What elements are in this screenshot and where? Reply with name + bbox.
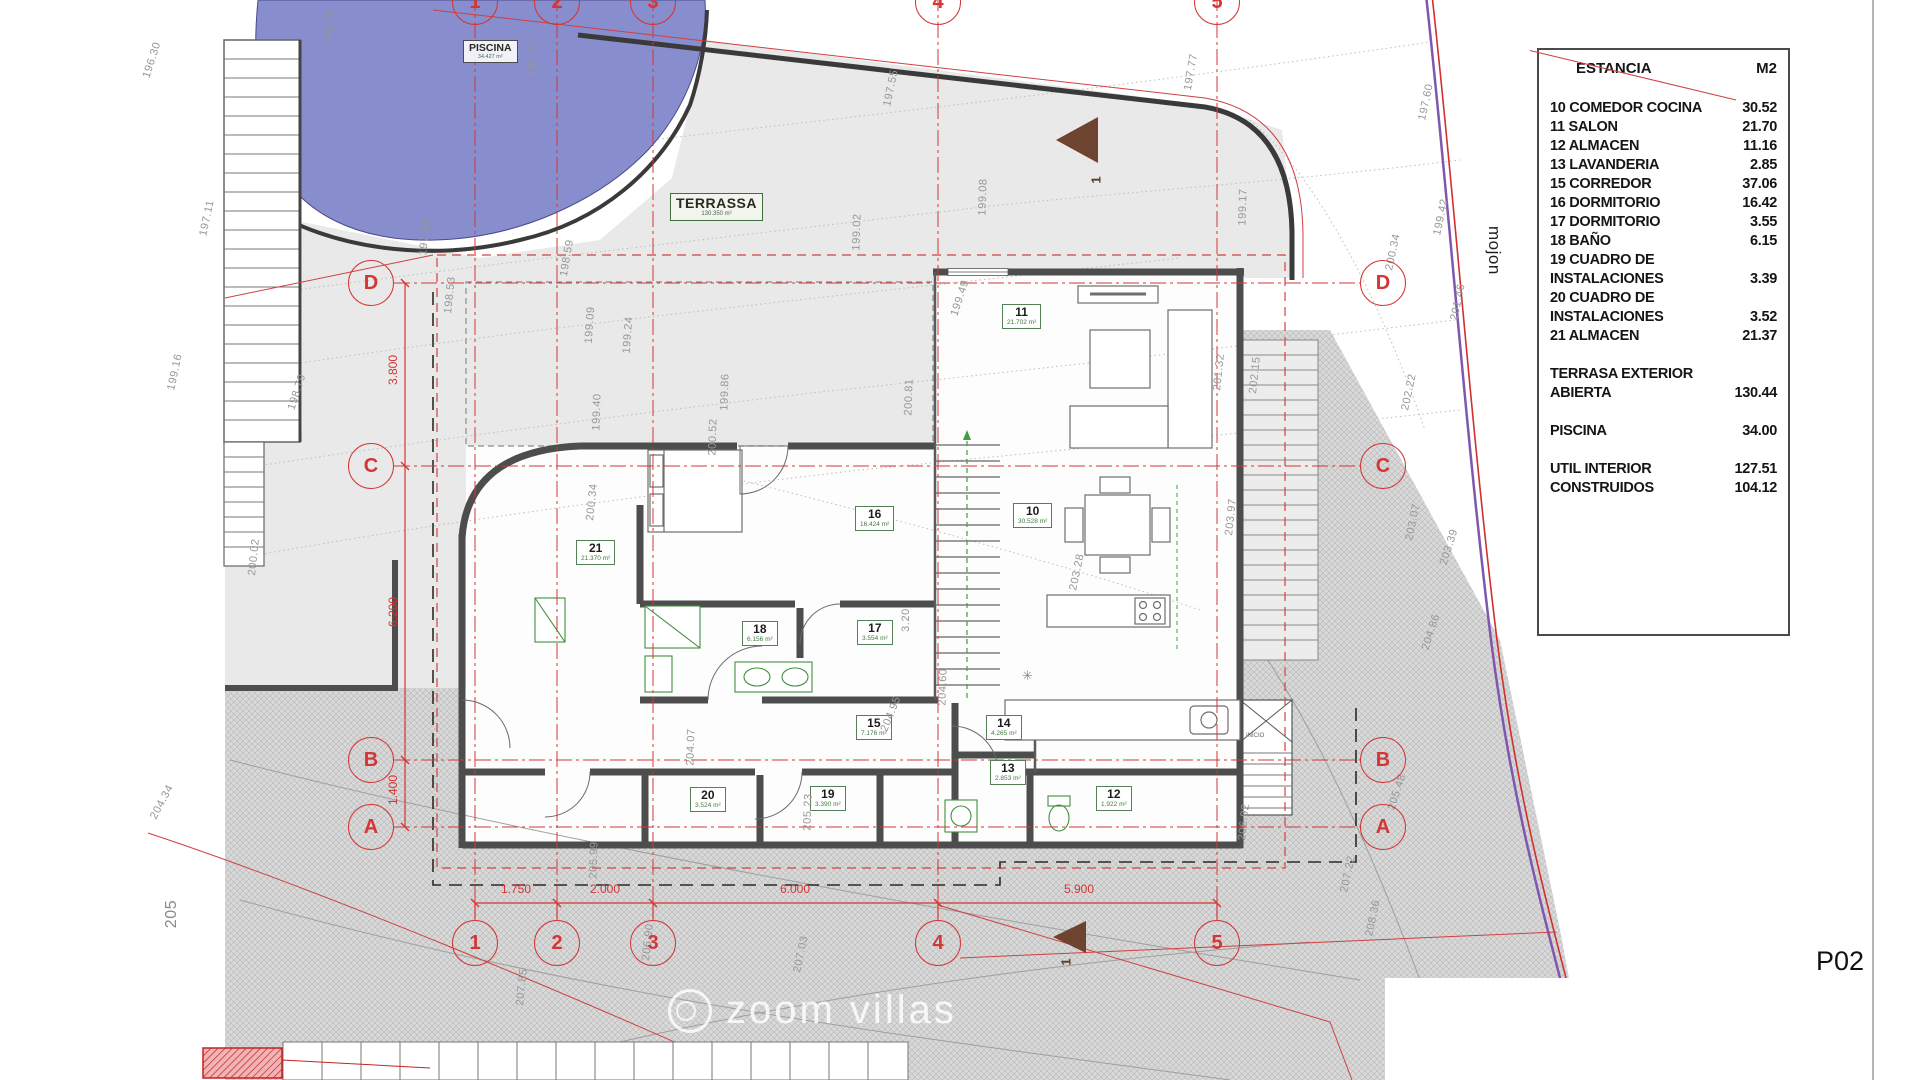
contour-label: 199.86 [718,373,731,411]
contour-label: 208.36 [1363,899,1382,938]
contour-label: 199.09 [583,306,598,344]
contour-label: 196.73 [526,39,539,77]
dimension-label: 2.000 [590,882,620,896]
mojon-label: mojon [1484,226,1504,275]
dimension-label: 6.200 [386,597,400,627]
contour-label: 204.60 [936,668,949,706]
grid-bubble-2-bottom: 2 [534,920,580,966]
legend-row: 20 CUADRO DE INSTALACIONES3.52 [1550,289,1777,327]
legend-rows: 10 COMEDOR COCINA30.5211 SALON21.7012 AL… [1550,99,1777,498]
floorplan-sheet: ✳ [0,0,1920,1080]
contour-label: 205 [163,900,181,929]
contour-label: 199.02 [850,213,863,251]
contour-label: 204.95 [878,694,903,733]
dimension-label: 6.000 [780,882,810,896]
stairs-start-label: INICIO [1246,733,1264,739]
contour-label: 203.28 [1067,553,1086,592]
contour-label: 197.55 [881,69,900,108]
grid-bubble-5-top: 5 [1194,0,1240,25]
contour-label: 199.16 [165,353,184,392]
contour-label: 202.22 [1399,373,1418,412]
pool-label-box: PISCINA 34.427 m² [463,40,518,63]
room-label-21: 2121.370 m² [576,540,615,565]
watermark-logo-icon [668,989,712,1033]
legend-col-m2: M2 [1756,60,1777,77]
contour-label: 206.92 [1236,803,1252,841]
room-label-17: 173.554 m² [857,620,893,645]
section-marker-number: 1 [1059,958,1074,965]
contour-label: 199.49 [949,278,972,317]
legend-row: CONSTRUIDOS104.12 [1550,479,1777,498]
contour-label: 203.39 [1438,527,1461,566]
legend-row: 13 LAVANDERIA2.85 [1550,156,1777,175]
contour-label: 197.68 [417,218,433,256]
grid-bubble-3-top: 3 [630,0,676,25]
legend-row: 12 ALMACEN11.16 [1550,137,1777,156]
contour-label: 200.52 [706,418,719,456]
contour-label: 202.15 [1247,356,1263,394]
contour-label: 203.97 [1223,498,1239,536]
contour-label: 204.07 [684,728,697,766]
contour-label: 204.86 [1420,612,1443,651]
room-label-10: 1030.528 m² [1013,503,1052,528]
room-label-20: 203.524 m² [690,787,726,812]
room-label-11: 1121.702 m² [1002,304,1041,329]
grid-bubble-D-right: D [1360,260,1406,306]
terrace-name: TERRASSA [676,196,757,211]
contour-label: 201.32 [1211,353,1227,391]
legend-row: 11 SALON21.70 [1550,118,1777,137]
contour-label: 205.23 [801,793,814,831]
contour-label: 205.99 [587,841,600,879]
grid-bubble-C-left: C [348,443,394,489]
contour-label: 198.79 [286,372,309,411]
contour-label: 200.81 [902,378,915,416]
dimension-label: 3.800 [386,355,400,385]
grid-bubble-A-left: A [348,804,394,850]
contour-label: 204.34 [148,783,176,822]
legend-row: 19 CUADRO DE INSTALACIONES3.39 [1550,251,1777,289]
legend-row: 10 COMEDOR COCINA30.52 [1550,99,1777,118]
contour-label: 199.40 [590,393,603,431]
grid-bubble-2-top: 2 [534,0,580,25]
grid-bubble-B-right: B [1360,737,1406,783]
pool-name: PISCINA [469,43,512,54]
pool-area: 34.427 m² [469,54,512,60]
legend-row: TERRASA EXTERIOR ABIERTA130.44 [1550,365,1777,403]
legend-table: ESTANCIA M2 10 COMEDOR COCINA30.5211 SAL… [1537,48,1790,636]
contour-label: 197.77 [1182,53,1200,92]
legend-row: 18 BAÑO6.15 [1550,232,1777,251]
grid-bubble-C-right: C [1360,443,1406,489]
room-label-19: 193.390 m² [810,786,846,811]
contour-label: 197.60 [1416,83,1435,122]
grid-bubble-4-top: 4 [915,0,961,25]
contour-label: 200.02 [246,538,262,576]
legend-row: PISCINA34.00 [1550,422,1777,441]
terrace-label-box: TERRASSA 130.350 m² [670,193,763,221]
room-label-18: 186.156 m² [742,621,778,646]
contour-label: 199.42 [1431,198,1450,237]
terrace-area: 130.350 m² [676,211,757,218]
contour-label: 198.59 [558,239,576,278]
legend-row: 17 DORMITORIO3.55 [1550,213,1777,232]
grid-bubble-5-bottom: 5 [1194,920,1240,966]
section-marker-number: 1 [1089,176,1104,183]
grid-bubble-1-bottom: 1 [452,920,498,966]
watermark: zoom villas [668,988,957,1033]
contour-label: 200.34 [584,483,600,521]
contour-label: 197.11 [197,199,216,237]
room-label-14: 144.265 m² [986,715,1022,740]
contour-label: 199.24 [621,316,636,354]
legend-row: 21 ALMACEN21.37 [1550,327,1777,346]
legend-row: 15 CORREDOR37.06 [1550,175,1777,194]
legend-row: UTIL INTERIOR127.51 [1550,460,1777,479]
grid-bubble-A-right: A [1360,804,1406,850]
contour-label: 199.17 [1236,188,1249,226]
legend-row: 16 DORMITORIO16.42 [1550,194,1777,213]
room-label-12: 121.922 m² [1096,786,1132,811]
grid-bubble-1-top: 1 [452,0,498,25]
room-label-16: 1616.424 m² [855,506,894,531]
contour-label: 207.03 [791,935,810,974]
dimension-label: 5.900 [1064,882,1094,896]
contour-label: 198.53 [442,276,458,314]
dimension-label: 1.750 [501,882,531,896]
contour-label: 196.30 [141,40,164,79]
grid-bubble-3-bottom: 3 [630,920,676,966]
legend-col-estancia: ESTANCIA [1576,60,1652,77]
contour-label: 207.85 [514,968,530,1006]
contour-label: 207.22 [1338,855,1357,894]
room-label-13: 132.853 m² [990,760,1026,785]
contour-label: 203.07 [1403,503,1422,542]
grid-bubble-4-bottom: 4 [915,920,961,966]
grid-bubble-D-left: D [348,260,394,306]
contour-label: 196.29 [323,9,338,47]
sheet-code: P02 [1816,946,1864,977]
watermark-text: zoom villas [726,988,957,1033]
contour-label: 199.08 [976,178,989,216]
dimension-label: 1.400 [386,775,400,805]
contour-label: 3.20 [900,608,912,632]
contour-label: 201.46 [1448,283,1467,322]
